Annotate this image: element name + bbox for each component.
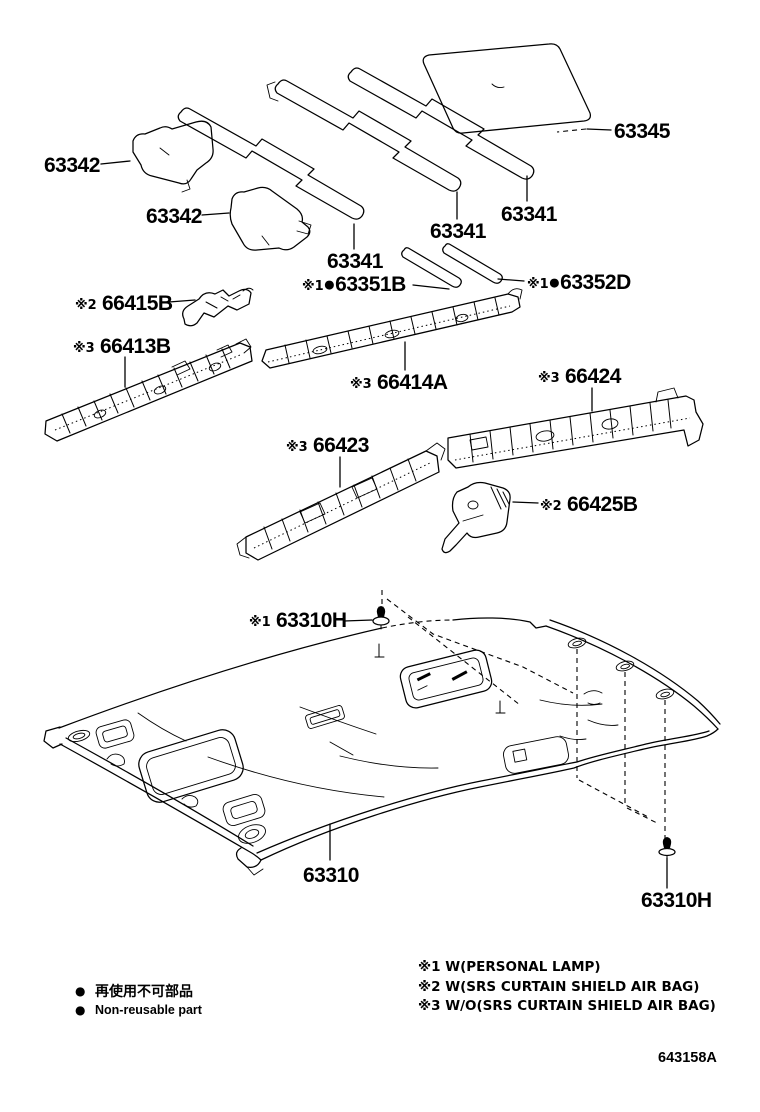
part-number: 63342	[44, 154, 100, 177]
front-console-opening	[136, 727, 247, 806]
parts-catalog-page: 63342 63342 63341 63341 63341 63345 ※1 ●…	[0, 0, 760, 1112]
drawing-66414A-support	[262, 289, 522, 368]
part-number: 66414A	[377, 371, 448, 394]
part-label-66413B[interactable]: ※3 66413B	[73, 335, 171, 358]
part-label-63342-rear[interactable]: 63342	[146, 205, 202, 228]
ref-mark: ※3	[538, 371, 560, 386]
part-label-63341-right[interactable]: 63341	[501, 203, 558, 226]
part-number: 63341	[327, 250, 384, 273]
part-number: ●63351B	[323, 273, 406, 296]
part-label-63345[interactable]: 63345	[614, 120, 671, 143]
drawing-66423-support	[237, 443, 445, 560]
sunvisor-mount	[95, 718, 136, 749]
grommet-hole	[567, 636, 587, 649]
drawing-63341-center-strip	[267, 80, 461, 191]
part-number: 66425B	[567, 493, 638, 516]
part-label-66423[interactable]: ※3 66423	[286, 434, 369, 457]
part-label-63341-center[interactable]: 63341	[430, 220, 487, 243]
part-label-63310H-top[interactable]: ※1 63310H	[249, 609, 347, 632]
rear-lamp-opening	[502, 735, 570, 775]
grommet-hole	[655, 687, 675, 700]
roof-headlining-diagram: 63342 63342 63341 63341 63341 63345 ※1 ●…	[0, 0, 760, 1112]
drawing-63342-rear-pad	[230, 187, 311, 250]
drawing-63342-front-pad	[133, 121, 213, 192]
ref-mark: ※2	[75, 298, 97, 313]
contour-lines	[138, 700, 618, 797]
part-number: 63310H	[276, 609, 347, 632]
ref-mark: ※1	[527, 277, 549, 292]
non-reusable-bullet-jp: ●	[75, 984, 85, 998]
part-number: 66424	[565, 365, 622, 388]
leader-63342-front	[101, 161, 130, 164]
drawing-63352D-strip	[443, 244, 503, 284]
part-label-66424[interactable]: ※3 66424	[538, 365, 622, 388]
part-number: 66413B	[100, 335, 171, 358]
ref-mark: ※3	[350, 377, 372, 392]
part-number: 63310	[303, 864, 359, 887]
drawing-63345-silencer-pad	[423, 44, 590, 133]
support-ribs	[55, 349, 240, 433]
clip-63310H-bottom	[659, 837, 675, 859]
support-ribs	[455, 400, 690, 462]
ref-mark: ※3	[73, 341, 95, 356]
part-number: 63310H	[641, 889, 712, 912]
part-label-66415B[interactable]: ※2 66415B	[75, 292, 173, 315]
part-number: ●63352D	[548, 271, 631, 294]
leader-63310H-top	[344, 620, 372, 621]
ref-mark: ※1	[249, 615, 271, 630]
note-3: ※3 W/O(SRS CURTAIN SHIELD AIR BAG)	[418, 998, 716, 1014]
drawing-63310-headlining	[44, 590, 720, 875]
leader-63351B	[413, 285, 449, 289]
drawing-number: 643158A	[658, 1050, 717, 1066]
overhead-console-opening	[398, 648, 494, 710]
drawing-66415B-bracket	[183, 288, 253, 326]
leader-63345	[587, 129, 611, 130]
grommet-hole	[236, 821, 268, 847]
part-label-63310H-bottom[interactable]: 63310H	[641, 889, 712, 912]
leader-66425B	[513, 502, 538, 503]
drawing-66424-support	[448, 388, 703, 468]
legend-text-jp: 再使用不可部品	[95, 983, 193, 1000]
roof-slot	[305, 705, 345, 729]
support-ribs	[254, 459, 432, 549]
ref-mark: ※3	[286, 440, 308, 455]
part-number: 63345	[614, 120, 671, 143]
leader-63345-dashed	[557, 129, 586, 132]
part-label-66414A[interactable]: ※3 66414A	[350, 371, 448, 394]
non-reusable-bullet-en: ●	[75, 1003, 85, 1017]
ref-mark: ※2	[540, 499, 562, 514]
clip-63310H-top	[373, 606, 389, 629]
reference-notes: ※1 W(PERSONAL LAMP) ※2 W(SRS CURTAIN SHI…	[418, 959, 716, 1014]
legend-text-en: Non-reusable part	[95, 1003, 203, 1017]
drawing-63341-right-strip	[348, 68, 534, 179]
part-label-63310[interactable]: 63310	[303, 864, 359, 887]
part-label-63351B[interactable]: ※1 ●63351B	[302, 273, 406, 296]
grommet-hole	[615, 659, 635, 672]
note-2: ※2 W(SRS CURTAIN SHIELD AIR BAG)	[418, 979, 699, 995]
part-label-63352D[interactable]: ※1 ●63352D	[527, 271, 631, 294]
part-label-66425B[interactable]: ※2 66425B	[540, 493, 638, 516]
part-number: 66415B	[102, 292, 173, 315]
legend-non-reusable: ● 再使用不可部品 ● Non-reusable part	[75, 983, 203, 1017]
ref-mark: ※1	[302, 279, 324, 294]
part-label-63342-front[interactable]: 63342	[44, 154, 100, 177]
part-number: 63341	[501, 203, 558, 226]
part-number: 66423	[313, 434, 369, 457]
sunvisor-mount	[221, 793, 266, 828]
part-label-63341-left[interactable]: 63341	[327, 250, 384, 273]
drawing-66425B-bracket	[442, 483, 510, 553]
part-number: 63341	[430, 220, 487, 243]
support-ribs	[268, 298, 510, 363]
sunvisor-hole	[67, 728, 91, 743]
leader-63342-rear	[202, 213, 229, 215]
part-number: 63342	[146, 205, 202, 228]
leader-66415B	[169, 300, 195, 302]
drawing-63351B-strip	[402, 248, 462, 288]
note-1: ※1 W(PERSONAL LAMP)	[418, 959, 601, 975]
